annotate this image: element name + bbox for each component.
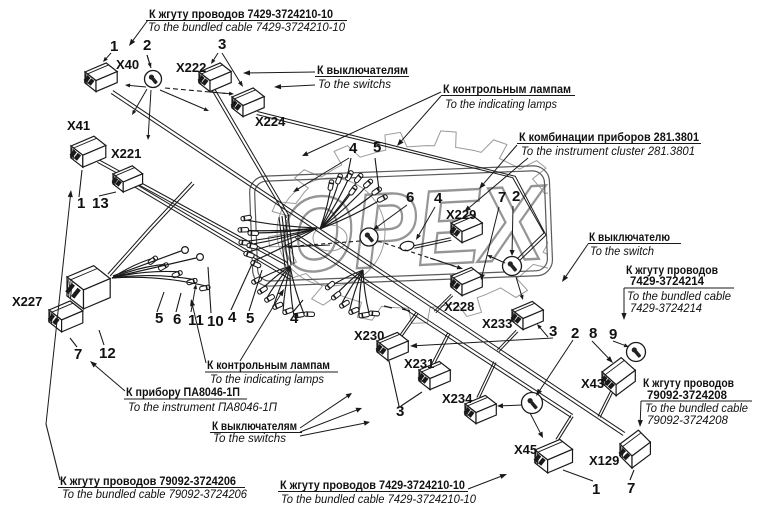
svg-text:5: 5 bbox=[246, 310, 254, 327]
svg-text:К контрольным лампам: К контрольным лампам bbox=[207, 358, 330, 372]
svg-text:5: 5 bbox=[155, 310, 163, 327]
svg-text:3: 3 bbox=[549, 323, 557, 340]
svg-text:To the indicating lamps: To the indicating lamps bbox=[445, 97, 557, 111]
svg-text:К жгуту проводов 7429-3724210-: К жгуту проводов 7429-3724210-10 bbox=[280, 478, 465, 492]
svg-text:To the switchs: To the switchs bbox=[213, 431, 286, 445]
svg-text:79092-3724208: 79092-3724208 bbox=[647, 413, 728, 427]
svg-text:8: 8 bbox=[589, 325, 597, 342]
svg-text:X229: X229 bbox=[446, 207, 476, 222]
svg-text:1: 1 bbox=[110, 38, 118, 55]
svg-text:К прибору ПА8046-1П: К прибору ПА8046-1П bbox=[126, 385, 240, 399]
svg-text:К жгуту проводов 7429-3724210-: К жгуту проводов 7429-3724210-10 bbox=[149, 7, 333, 21]
svg-text:X224: X224 bbox=[255, 114, 286, 129]
svg-text:To the instrument cluster 281.: To the instrument cluster 281.3801 bbox=[521, 144, 695, 158]
svg-text:X129: X129 bbox=[589, 453, 619, 468]
svg-text:X221: X221 bbox=[111, 146, 141, 161]
svg-text:4: 4 bbox=[290, 310, 299, 327]
svg-text:4: 4 bbox=[228, 309, 237, 326]
svg-text:X231: X231 bbox=[404, 356, 434, 371]
svg-text:7: 7 bbox=[498, 189, 506, 206]
svg-text:79092-3724208: 79092-3724208 bbox=[647, 388, 727, 402]
svg-text:К комбинации приборов 281.3801: К комбинации приборов 281.3801 bbox=[519, 130, 699, 144]
svg-text:X43: X43 bbox=[581, 376, 604, 391]
svg-text:2: 2 bbox=[512, 188, 520, 205]
svg-text:7: 7 bbox=[627, 480, 635, 497]
svg-text:3: 3 bbox=[396, 403, 404, 420]
svg-text:X41: X41 bbox=[67, 118, 90, 133]
svg-text:To the switchs: To the switchs bbox=[318, 77, 391, 91]
svg-text:To the instrument ПА8046-1П: To the instrument ПА8046-1П bbox=[128, 400, 277, 414]
svg-text:7: 7 bbox=[74, 346, 82, 363]
svg-text:X40: X40 bbox=[116, 57, 139, 72]
svg-text:12: 12 bbox=[99, 345, 116, 362]
svg-text:2: 2 bbox=[143, 37, 151, 54]
svg-text:To the indicating lamps: To the indicating lamps bbox=[210, 372, 324, 386]
svg-text:To the bundled cable 7429-3724: To the bundled cable 7429-3724210-10 bbox=[281, 492, 476, 506]
svg-text:К выключателям: К выключателям bbox=[317, 63, 408, 77]
svg-text:4: 4 bbox=[349, 140, 358, 157]
svg-text:11: 11 bbox=[188, 312, 204, 329]
svg-text:To the bundled cable 7429-3724: To the bundled cable 7429-3724210-10 bbox=[148, 20, 345, 34]
svg-text:X230: X230 bbox=[354, 328, 384, 343]
svg-text:To the bundled cable 79092-372: To the bundled cable 79092-3724206 bbox=[62, 487, 247, 501]
svg-text:X234: X234 bbox=[442, 391, 473, 406]
svg-text:6: 6 bbox=[173, 311, 181, 328]
svg-text:7429-3724214: 7429-3724214 bbox=[630, 301, 702, 315]
svg-text:7429-3724214: 7429-3724214 bbox=[630, 274, 704, 288]
svg-text:10: 10 bbox=[207, 313, 224, 330]
svg-text:X45: X45 bbox=[514, 442, 537, 457]
svg-text:5: 5 bbox=[373, 139, 381, 156]
svg-text:К жгуту проводов 79092-3724206: К жгуту проводов 79092-3724206 bbox=[60, 474, 236, 488]
svg-text:6: 6 bbox=[406, 189, 414, 206]
svg-text:1: 1 bbox=[592, 481, 600, 498]
svg-text:To the switch: To the switch bbox=[590, 244, 654, 258]
svg-text:X228: X228 bbox=[444, 299, 474, 314]
svg-text:2: 2 bbox=[571, 325, 579, 342]
svg-text:4: 4 bbox=[434, 190, 443, 207]
svg-text:X227: X227 bbox=[12, 294, 42, 309]
svg-text:К контрольным лампам: К контрольным лампам bbox=[443, 82, 571, 96]
svg-text:3: 3 bbox=[218, 36, 226, 53]
svg-text:1: 1 bbox=[77, 195, 85, 212]
svg-text:13: 13 bbox=[92, 195, 109, 212]
svg-text:К выключателю: К выключателю bbox=[589, 230, 670, 244]
svg-text:X222: X222 bbox=[176, 60, 206, 75]
svg-text:X233: X233 bbox=[482, 316, 512, 331]
svg-text:9: 9 bbox=[609, 326, 617, 343]
